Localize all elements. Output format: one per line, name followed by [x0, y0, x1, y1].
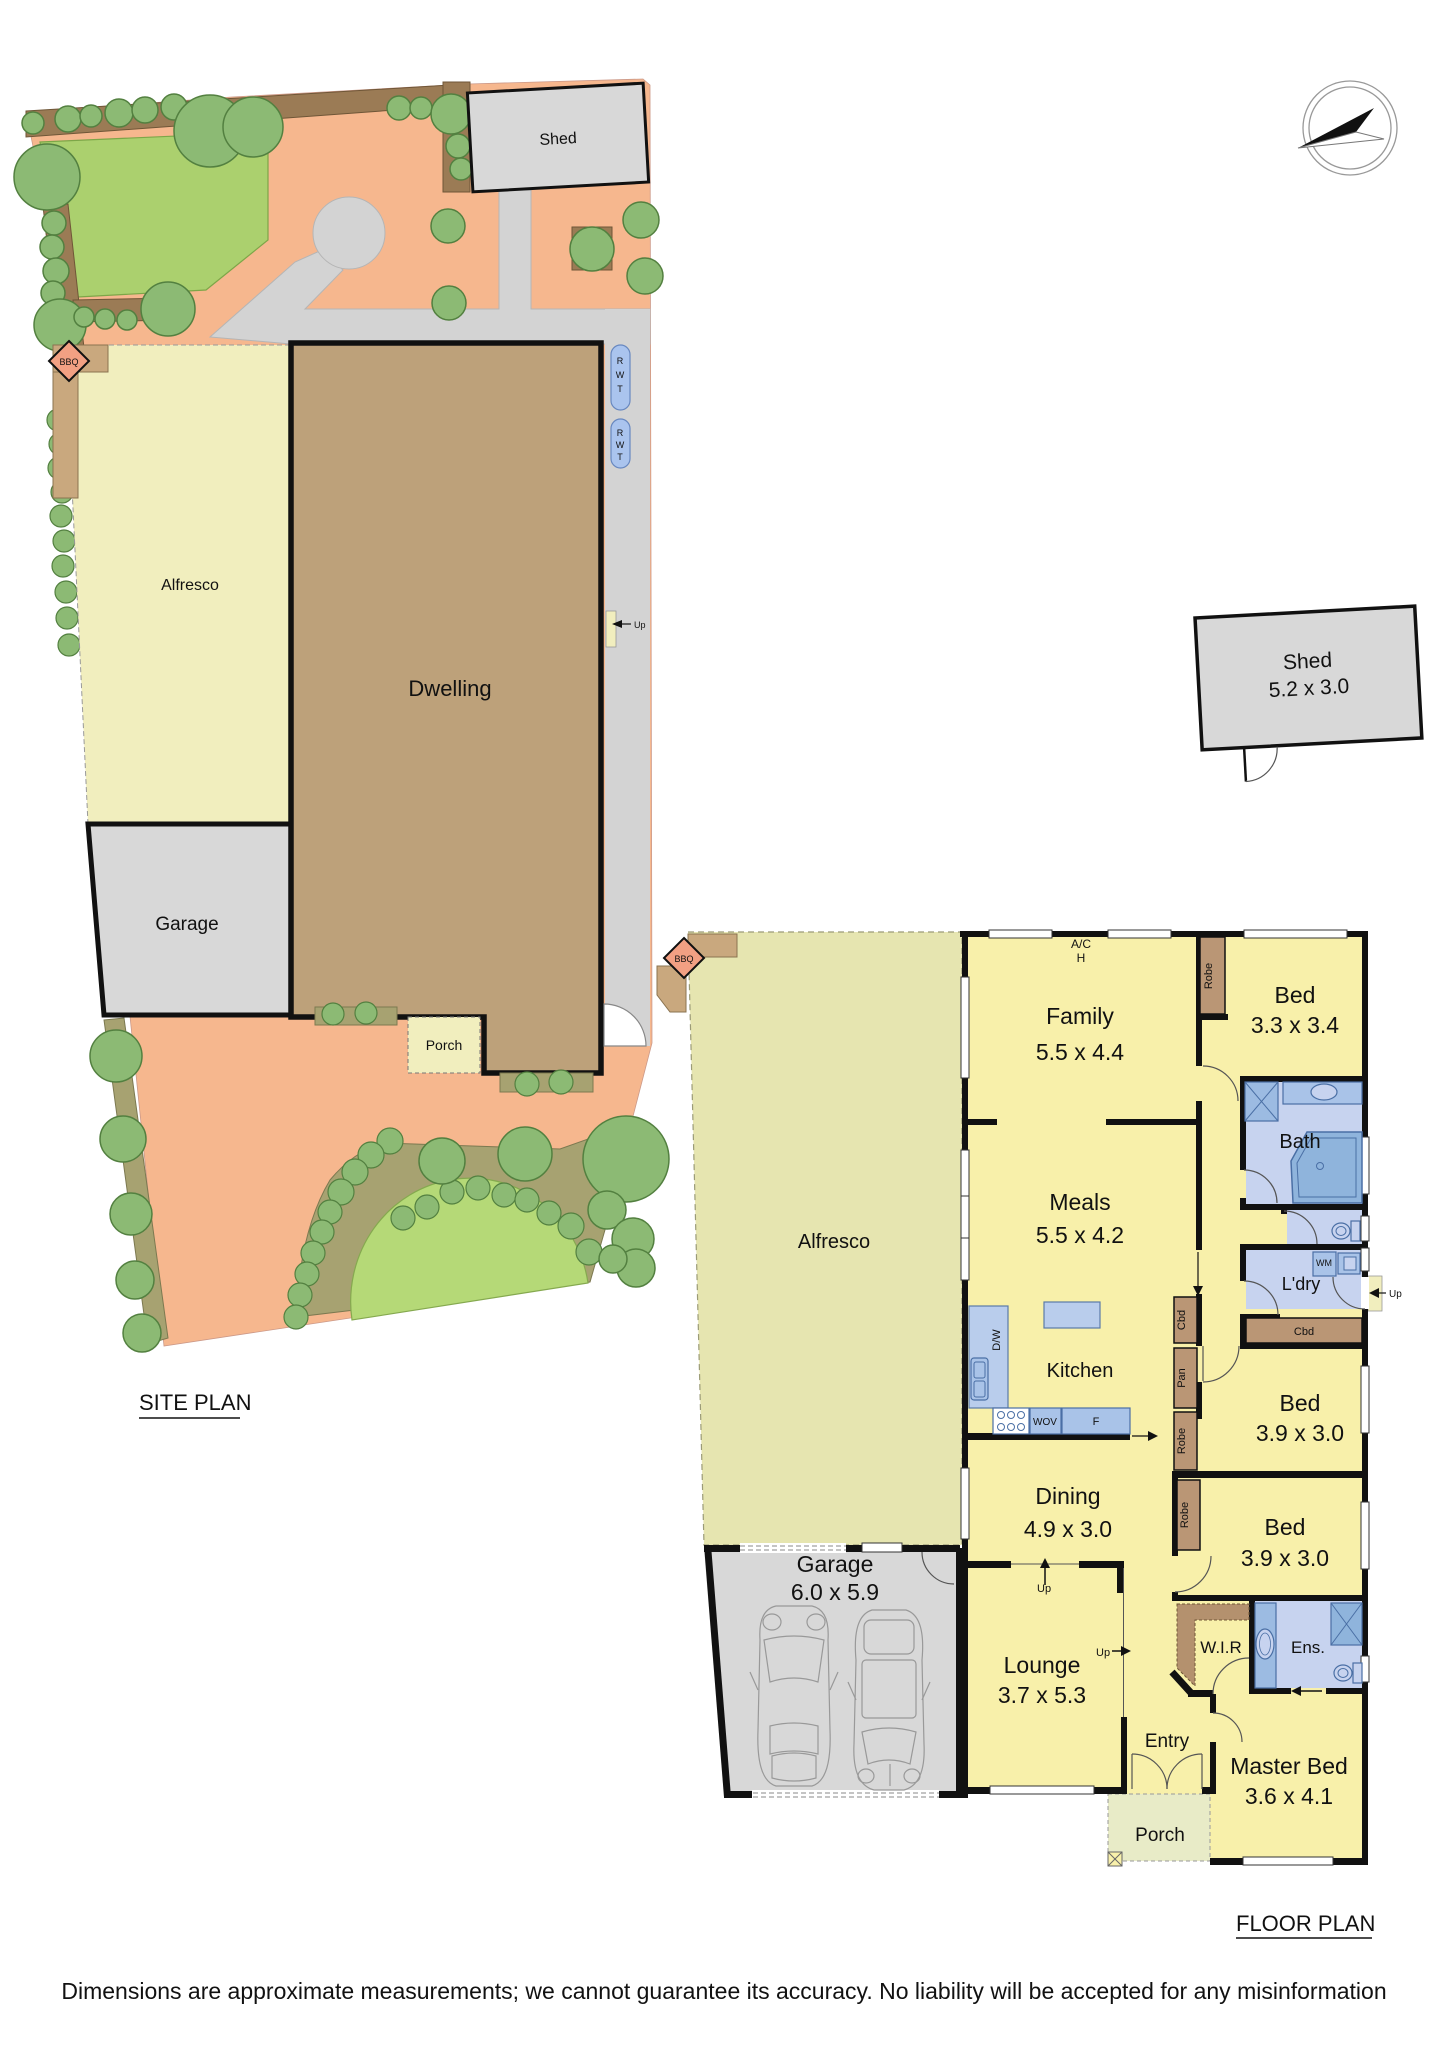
svg-text:Alfresco: Alfresco	[161, 577, 219, 594]
svg-text:Garage: Garage	[155, 914, 218, 935]
svg-text:Robe: Robe	[1179, 1502, 1191, 1528]
svg-text:Bed: Bed	[1265, 1514, 1306, 1540]
svg-text:3.3 x 3.4: 3.3 x 3.4	[1251, 1012, 1339, 1038]
svg-text:L'dry: L'dry	[1282, 1274, 1320, 1294]
svg-text:Shed: Shed	[539, 130, 577, 149]
svg-text:Alfresco: Alfresco	[798, 1231, 870, 1253]
svg-text:Bed: Bed	[1275, 982, 1316, 1008]
svg-text:Up: Up	[634, 620, 646, 630]
svg-text:Dwelling: Dwelling	[408, 676, 491, 701]
svg-text:5.5 x 4.2: 5.5 x 4.2	[1036, 1222, 1124, 1248]
svg-text:H: H	[1077, 951, 1086, 965]
svg-text:W: W	[616, 370, 625, 380]
svg-text:Cbd: Cbd	[1294, 1326, 1314, 1338]
svg-text:Bath: Bath	[1279, 1131, 1320, 1153]
svg-text:Kitchen: Kitchen	[1047, 1360, 1114, 1382]
svg-text:FLOOR PLAN: FLOOR PLAN	[1236, 1911, 1375, 1936]
svg-text:Up: Up	[1096, 1647, 1110, 1659]
svg-text:3.7 x 5.3: 3.7 x 5.3	[998, 1682, 1086, 1708]
svg-text:Cbd: Cbd	[1176, 1310, 1188, 1330]
svg-text:BBQ: BBQ	[674, 954, 693, 964]
svg-text:Master Bed: Master Bed	[1230, 1753, 1348, 1779]
svg-text:Shed: Shed	[1282, 649, 1332, 675]
svg-text:Robe: Robe	[1176, 1428, 1188, 1454]
svg-text:Up: Up	[1389, 1289, 1402, 1300]
svg-text:Meals: Meals	[1049, 1189, 1110, 1215]
svg-text:3.9 x 3.0: 3.9 x 3.0	[1256, 1420, 1344, 1446]
svg-text:BBQ: BBQ	[59, 357, 78, 367]
svg-text:W: W	[616, 440, 625, 450]
svg-text:Family: Family	[1046, 1003, 1114, 1029]
svg-text:Up: Up	[1037, 1583, 1051, 1595]
svg-text:3.9 x 3.0: 3.9 x 3.0	[1241, 1545, 1329, 1571]
svg-text:Garage: Garage	[797, 1551, 874, 1577]
svg-text:Lounge: Lounge	[1004, 1652, 1081, 1678]
svg-text:Robe: Robe	[1203, 963, 1215, 989]
svg-text:Porch: Porch	[1135, 1825, 1185, 1846]
svg-text:5.2 x 3.0: 5.2 x 3.0	[1268, 675, 1350, 702]
svg-text:Dimensions are approximate mea: Dimensions are approximate measurements;…	[61, 1978, 1386, 2004]
svg-text:Dining: Dining	[1035, 1483, 1100, 1509]
svg-text:R: R	[617, 356, 624, 366]
svg-text:3.6 x 4.1: 3.6 x 4.1	[1245, 1783, 1333, 1809]
svg-text:A/C: A/C	[1071, 937, 1091, 951]
svg-text:4.9 x 3.0: 4.9 x 3.0	[1024, 1516, 1112, 1542]
svg-text:WOV: WOV	[1033, 1417, 1057, 1428]
svg-text:W.I.R: W.I.R	[1200, 1638, 1242, 1657]
svg-text:R: R	[617, 428, 624, 438]
svg-text:WM: WM	[1316, 1258, 1332, 1268]
svg-text:5.5 x 4.4: 5.5 x 4.4	[1036, 1039, 1124, 1065]
svg-text:Pan: Pan	[1176, 1368, 1188, 1388]
svg-text:Ens.: Ens.	[1291, 1638, 1325, 1657]
svg-text:T: T	[617, 384, 623, 394]
svg-text:Porch: Porch	[426, 1037, 463, 1053]
svg-text:SITE PLAN: SITE PLAN	[139, 1390, 251, 1415]
svg-text:Entry: Entry	[1145, 1731, 1190, 1752]
svg-text:T: T	[617, 452, 623, 462]
svg-text:6.0 x 5.9: 6.0 x 5.9	[791, 1579, 879, 1605]
svg-text:F: F	[1093, 1416, 1100, 1428]
svg-text:D/W: D/W	[991, 1329, 1003, 1351]
svg-text:Bed: Bed	[1280, 1390, 1321, 1416]
